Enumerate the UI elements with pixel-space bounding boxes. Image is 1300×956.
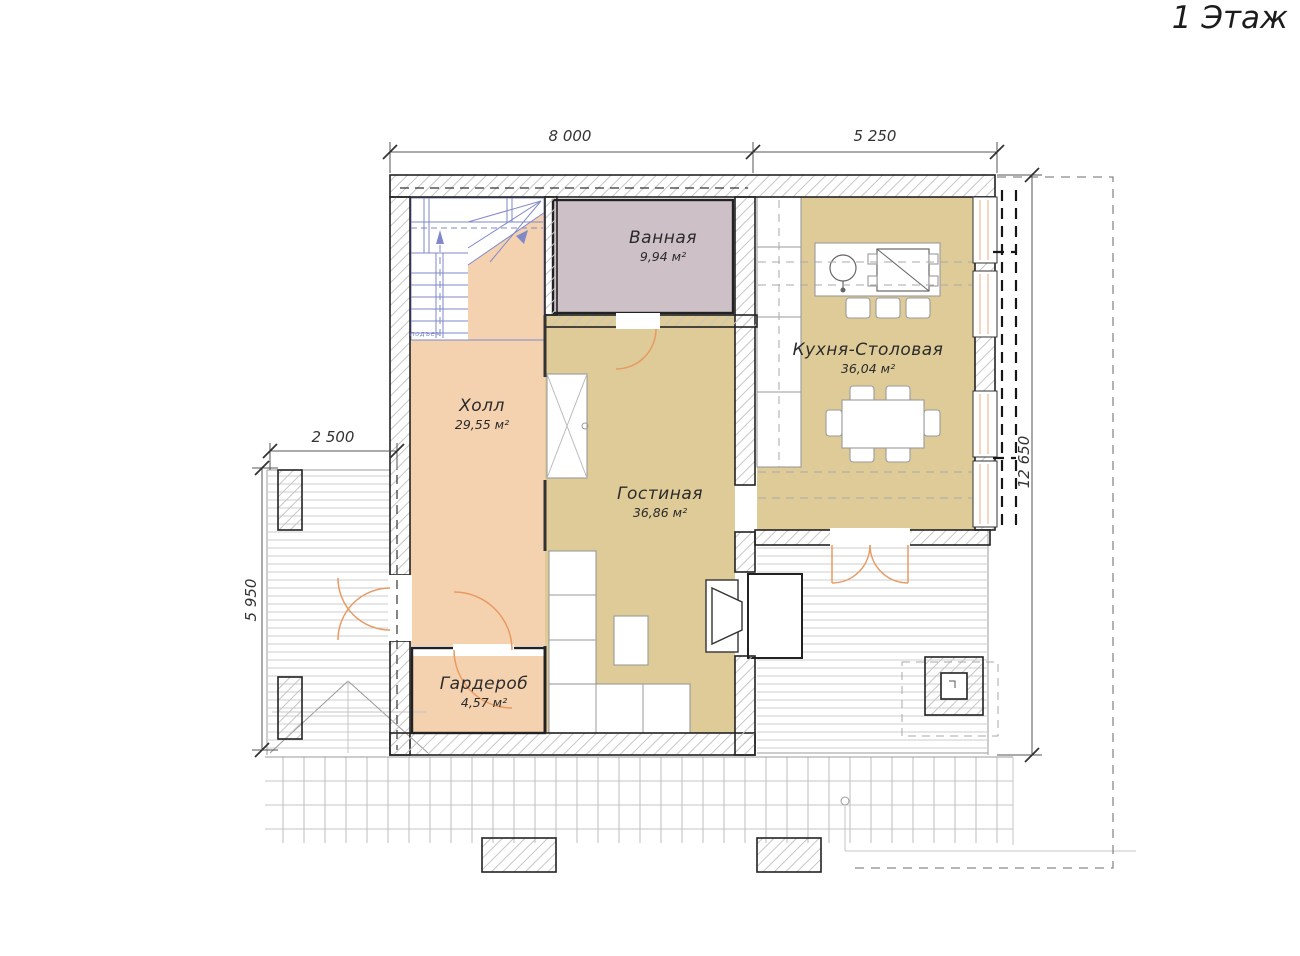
dimension-house-depth: 12 650 bbox=[1015, 412, 1035, 512]
wall-top bbox=[390, 175, 995, 197]
wall-middle-lower bbox=[735, 656, 755, 755]
dimension-terrace-width: 2 500 bbox=[273, 428, 393, 446]
terrace-column-1 bbox=[278, 470, 302, 530]
sink-icon bbox=[830, 255, 856, 281]
kitchen-island bbox=[815, 243, 940, 296]
dimension-terrace-depth: 5 950 bbox=[242, 555, 262, 645]
wall-middle-mid bbox=[735, 532, 755, 572]
bar-stools bbox=[846, 298, 930, 318]
wall-bathroom-left bbox=[545, 197, 557, 315]
wall-middle-upper bbox=[735, 197, 755, 485]
pier-left bbox=[482, 838, 556, 872]
pier-right bbox=[757, 838, 821, 872]
entrance-steps bbox=[265, 757, 1136, 872]
wall-left-upper bbox=[390, 197, 410, 575]
wall-bottom bbox=[390, 733, 755, 755]
floor-plan-page: 1 Этаж 8 000 5 250 2 500 5 950 12 650 Ва… bbox=[0, 0, 1300, 956]
stairs-label: подъем bbox=[410, 330, 441, 338]
dimension-width-kitchen: 5 250 bbox=[790, 127, 960, 145]
terrace-column-3 bbox=[925, 657, 983, 715]
dimension-width-main: 8 000 bbox=[480, 127, 660, 145]
page-title: 1 Этаж bbox=[1172, 0, 1288, 36]
terrace-column-2 bbox=[278, 677, 302, 739]
coffee-table bbox=[614, 616, 648, 665]
tv-unit bbox=[547, 374, 588, 478]
fireplace bbox=[706, 574, 802, 658]
